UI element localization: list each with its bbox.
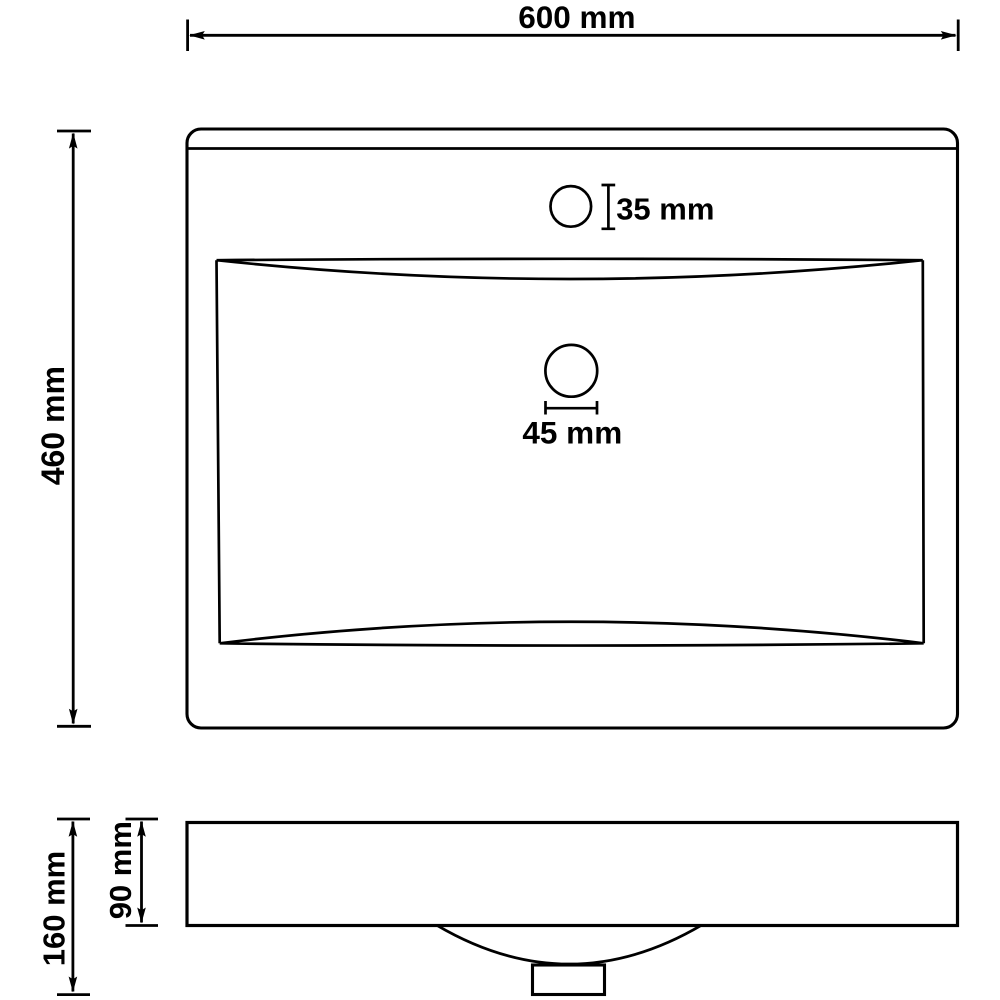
svg-text:460 mm: 460 mm — [35, 366, 71, 485]
svg-text:45 mm: 45 mm — [522, 415, 622, 451]
svg-text:600 mm: 600 mm — [518, 0, 635, 35]
svg-text:35 mm: 35 mm — [616, 191, 714, 226]
svg-text:90 mm: 90 mm — [103, 821, 138, 919]
svg-text:160 mm: 160 mm — [37, 851, 72, 966]
